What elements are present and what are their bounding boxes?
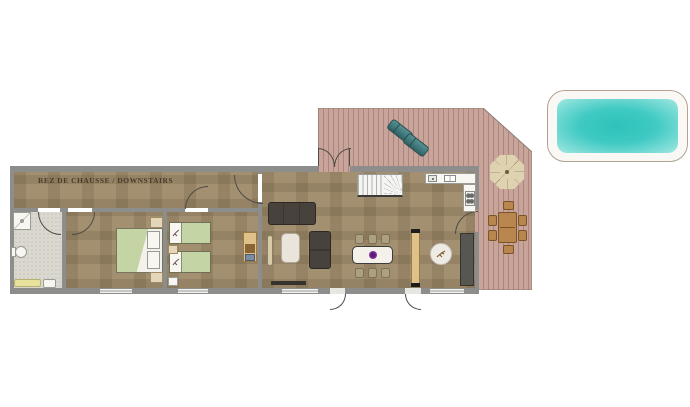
laptop (245, 254, 255, 261)
toilet (11, 246, 28, 258)
single-bed (169, 222, 211, 244)
wall-segment (92, 208, 185, 212)
window (282, 289, 318, 293)
swimming-pool (547, 90, 688, 162)
single-bed (169, 251, 211, 273)
appliance (428, 175, 437, 182)
outdoor-chair (503, 201, 514, 210)
wall-segment (475, 232, 479, 294)
pool-water (557, 99, 678, 153)
radiator (267, 235, 273, 266)
rear-door-arc (330, 294, 346, 310)
desk-drawer (245, 244, 255, 253)
flower-motif (171, 228, 181, 238)
shower-drain (20, 219, 24, 223)
wall-segment (208, 208, 262, 212)
outdoor-chair (518, 230, 527, 241)
floor-plan: REZ DE CHAUSSE / DOWNSTAIRS (0, 0, 690, 407)
stair-winders (384, 175, 402, 195)
nightstand (150, 272, 163, 283)
dining-chair (381, 234, 390, 244)
kitchen-counter (463, 184, 476, 212)
tall-cabinet (460, 233, 474, 286)
dining-table (352, 246, 393, 264)
window (100, 289, 132, 293)
round-rug (430, 243, 452, 265)
pillow (170, 252, 182, 272)
armchair (281, 233, 300, 263)
wall-segment (10, 166, 318, 172)
rear-door-arc (405, 294, 421, 310)
outdoor-table (498, 212, 517, 243)
flower-motif (171, 257, 181, 267)
dining-chair (368, 268, 377, 278)
wall-segment (350, 166, 479, 172)
dining-chair (355, 234, 364, 244)
outdoor-chair (503, 245, 514, 254)
wall-segment (163, 212, 167, 288)
sofa (309, 231, 331, 269)
nightstand (150, 217, 163, 228)
parasol (490, 155, 524, 189)
window (178, 289, 208, 293)
stove (465, 191, 475, 206)
outdoor-chair (518, 215, 527, 226)
tv-console (271, 281, 306, 285)
wall-segment (62, 212, 66, 288)
french-door-leaf (318, 148, 319, 166)
outdoor-table-seam (500, 227, 515, 228)
bedside-rug (168, 277, 178, 286)
sideboard (411, 229, 420, 287)
wall-segment (10, 166, 14, 294)
staircase (357, 174, 403, 197)
toilet-bowl (15, 246, 27, 258)
floor-label: REZ DE CHAUSSE / DOWNSTAIRS (38, 176, 164, 185)
wall-segment (258, 172, 262, 174)
fruit-bowl (369, 251, 377, 259)
nightstand (168, 245, 178, 254)
appliance-knob (432, 178, 434, 180)
desk (243, 232, 257, 262)
sink (444, 175, 456, 182)
sofa (268, 202, 316, 225)
pillow (147, 231, 160, 249)
dining-chair (381, 268, 390, 278)
dining-chair (368, 234, 377, 244)
sideboard-end (411, 229, 420, 233)
pillow (147, 251, 160, 269)
sprig-motif (435, 249, 447, 259)
bath-rug (43, 279, 56, 288)
shower (13, 212, 31, 230)
outdoor-chair (488, 230, 497, 241)
window (430, 289, 464, 293)
dining-chair (355, 268, 364, 278)
sideboard-end (411, 283, 420, 287)
wall-segment (258, 202, 262, 288)
french-door-leaf (349, 148, 350, 166)
kitchen-counter (425, 173, 476, 184)
double-bed (116, 228, 163, 273)
pillow (170, 223, 182, 243)
bath-mat (14, 279, 41, 287)
outdoor-chair (488, 215, 497, 226)
stair-treads (358, 175, 385, 195)
parasol-pole (505, 170, 509, 174)
